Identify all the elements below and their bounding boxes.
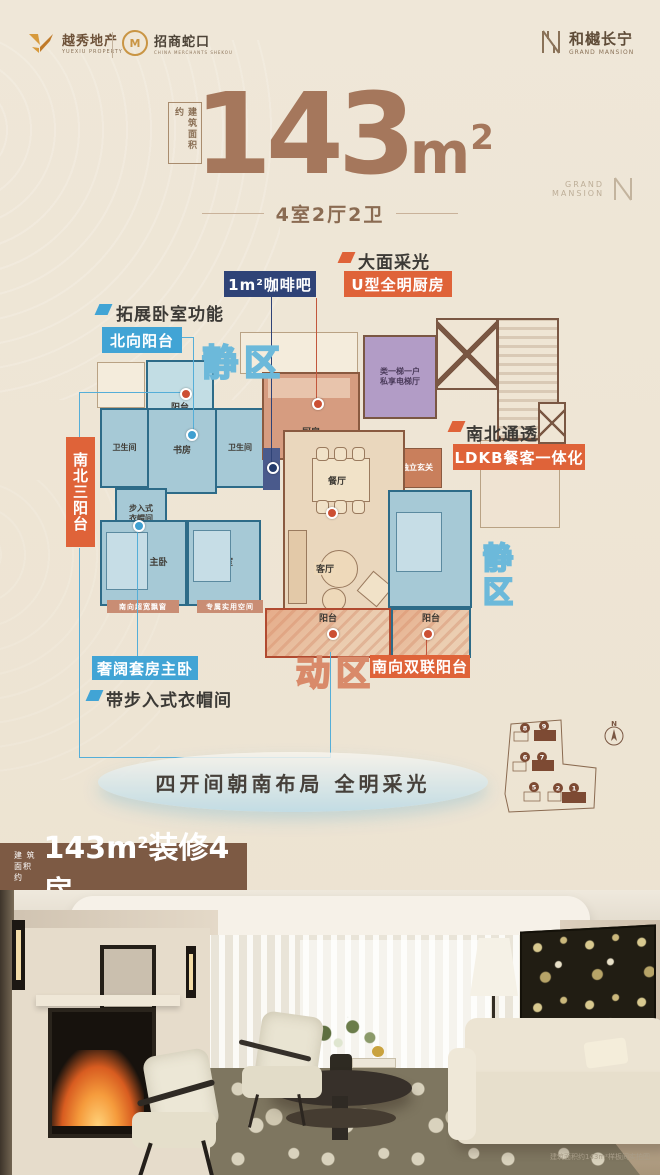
room-study: 书房 [147,408,217,494]
siteplan-building-outline [514,732,528,741]
connector-line [316,298,317,399]
headline-area-number: 143 [194,70,410,200]
connector-line [79,393,80,437]
watermark-grand: GRAND [552,180,604,189]
poster: 越秀地产 YUEXIU PROPERTY M 招商蛇口 CHINA MERCHA… [0,0,660,1175]
siteplan-building-number: 7 [540,754,545,762]
siteplan-building-outline [548,792,561,801]
marker-study [186,429,198,441]
flag-icon [448,421,466,432]
siteplan-building-number: 9 [542,723,547,731]
badge-north-balcony: 北向阳台 [102,327,182,353]
layout-text: 4室2厅2卫 [276,200,385,227]
siteplan-building-outline [524,792,540,801]
banner-prefix-1: 建 筑 [14,850,39,861]
badge-ldkb: LDKB餐客一体化 [453,444,585,470]
siteplan-building-number: 1 [572,785,577,793]
grand-name: 和樾长宁 [569,28,634,49]
flag-icon [95,304,113,315]
dining-label: 餐厅 [328,474,346,487]
marker-coffee-bar [267,462,279,474]
closet-label-1: 步入式 [129,504,153,514]
siteplan-building-number: 8 [523,725,528,733]
banner-value: 143m [43,831,137,866]
connector-line [180,337,194,338]
logo-grand-mansion: 和樾长宁 GRAND MANSION [540,28,634,56]
room-bath-right: 卫生间 [215,408,265,488]
room-ac-platform [97,362,145,408]
sofa-back [465,1018,660,1080]
marker-balcony-s2 [422,628,434,640]
sconce-light [189,954,193,990]
strip-bay-window: 南向超宽飘窗 [107,600,179,613]
marker-balcony-s1 [327,628,339,640]
room-elevator-shaft [436,318,498,390]
badge-three-balconies: 南北三阳台 [66,437,95,547]
showroom-photo: 建筑面积约143m²样板间实拍图 [0,890,660,1175]
mantel-shelf [36,995,180,1006]
siteplan-building-number: 2 [556,785,561,793]
dining-chair [352,447,365,461]
yuexiu-sub: YUEXIU PROPERTY [62,49,123,55]
siteplan-building-outline [513,762,526,771]
layout-line: 4室2厅2卫 [180,200,480,227]
table-books [352,1058,396,1068]
badge-master-suite: 奢阔套房主卧 [92,656,198,680]
badge-coffee-bar: 1m²咖啡吧 [224,271,316,297]
siteplan-building [562,792,586,803]
callout-daylight: 大面采光 [358,248,430,273]
marker-closet [133,520,145,532]
bottom-banner: 建 筑 面积约 143m2装修4房 [0,843,247,890]
fireplace-flames [52,1050,144,1126]
connector-line [193,337,194,433]
master-bed [106,532,148,590]
logo-yuexiu: 越秀地产 YUEXIU PROPERTY [28,30,123,55]
headline-area-sup: 2 [470,118,494,158]
callout-expand-bedroom: 拓展卧室功能 [116,300,224,325]
yuexiu-logo-icon [28,31,54,55]
dining-chair [334,447,347,461]
living-label: 客厅 [314,562,336,575]
siteplan-building-number: 6 [523,754,528,762]
layout-rule-right [396,213,458,214]
strip-utility-space: 专属实用空间 [197,600,263,613]
marker-dining [326,507,338,519]
connector-line [137,530,138,656]
elevator-hall-label-1: 类一梯一户 [380,367,420,377]
siteplan-building [534,730,556,741]
photo-caption: 建筑面积约143m²样板间实拍图 [460,1152,650,1162]
dining-chair [316,447,329,461]
marker-kitchen [312,398,324,410]
grand-sub: GRAND MANSION [569,49,634,56]
slogan-text: 四开间朝南布局 全明采光 [98,768,488,797]
layout-rule-left [202,213,264,214]
badge-south-double-balcony: 南向双联阳台 [370,655,470,678]
title-watermark: GRAND MANSION [552,176,634,202]
zone-quiet-top: 静区 [202,334,286,386]
compass-icon: N [605,720,623,745]
shekou-sub: CHINA MERCHANTS SHEKOU [154,50,233,55]
elevator-hall-label-2: 私享电梯厅 [380,377,420,387]
bedroom-right-bed [396,512,442,572]
logo-shekou: M 招商蛇口 CHINA MERCHANTS SHEKOU [122,30,233,56]
room-utility-shaft [538,402,566,444]
armchair-right-seat [242,1066,322,1098]
sconce-light [16,930,21,980]
watermark-mansion: MANSION [552,189,604,198]
yuexiu-name: 越秀地产 [62,30,123,49]
master-label: 主卧 [149,558,167,569]
zone-active: 动区 [296,646,376,695]
badge-u-kitchen: U型全明厨房 [344,271,452,297]
siteplan-building-number: 5 [532,784,537,792]
banner-sup: 2 [137,833,148,852]
connector-line [79,548,80,757]
shekou-logo-icon: M [122,30,148,56]
table-cup [372,1046,384,1057]
callout-walkin-closet: 带步入式衣帽间 [106,686,232,711]
flag-icon [86,690,104,701]
compass-n-label: N [611,720,617,728]
logo-divider [112,32,113,58]
watermark-n-icon [612,176,634,202]
callout-ns-through: 南北通透 [466,420,538,445]
dining-chair [352,500,365,514]
connector-line [79,392,182,393]
shekou-name: 招商蛇口 [154,31,233,50]
zone-quiet-right: 静区 [472,542,516,610]
headline-area: 143m2 [194,92,494,187]
room-bath-left: 卫生间 [100,408,149,488]
banner-prefix-2: 面积约 [14,861,39,883]
room-elevator-hall: 类一梯一户 私享电梯厅 [363,335,437,419]
grand-mansion-logo-icon [540,29,562,55]
living-sofa [288,530,307,604]
sofa-arm [448,1048,476,1140]
marker-balcony-north [180,388,192,400]
flag-icon [338,252,356,263]
headline-area-unit: m [410,119,470,187]
sofa-seat [456,1072,660,1144]
bedroom-mid-bed [193,530,231,582]
siteplan: 8 9 6 7 5 2 1 N [498,714,628,818]
connector-line [426,638,427,656]
